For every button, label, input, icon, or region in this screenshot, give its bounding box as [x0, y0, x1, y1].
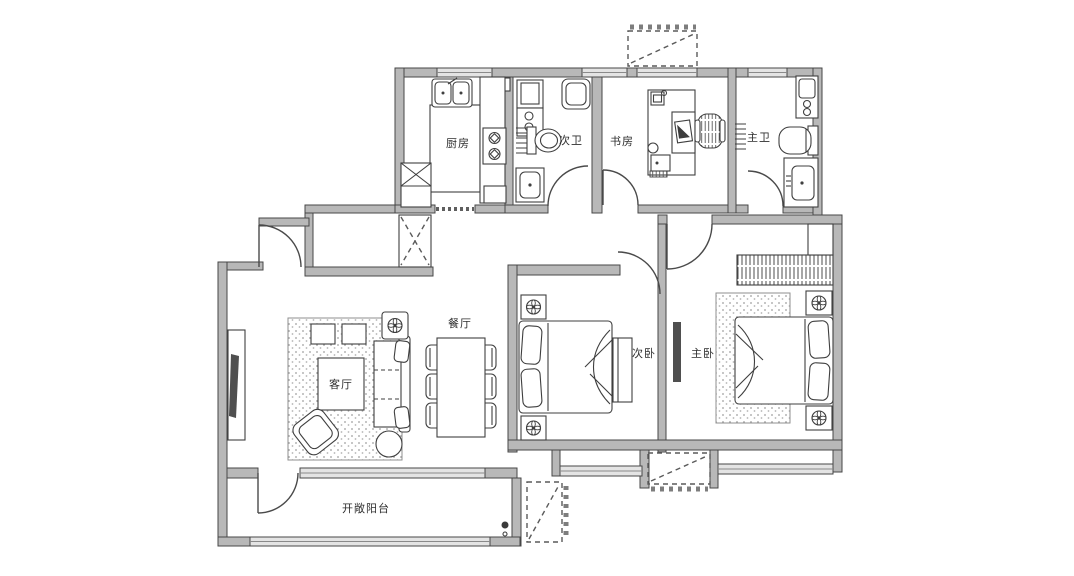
floor-drain-icon [502, 522, 509, 529]
room-label-master-bedroom: 主卧 [691, 347, 715, 360]
kitchen-stove [483, 128, 506, 164]
sofa [374, 336, 410, 432]
balcony [502, 522, 509, 537]
room-label-dining: 餐厅 [448, 316, 472, 330]
bath1-radiator [735, 124, 746, 149]
lamp-icon [526, 421, 540, 435]
study-door [603, 170, 638, 205]
window-master-bath [748, 68, 787, 77]
living-room [228, 312, 410, 460]
office-chair [695, 114, 725, 148]
window-balcony-inner [300, 468, 485, 478]
floor-cushion [342, 324, 366, 344]
computer-icon [675, 120, 693, 143]
master-bedroom [673, 224, 833, 430]
dining-room [426, 338, 496, 437]
ac-platform-bottom [648, 453, 710, 489]
bath2-toilet [527, 127, 561, 154]
nightstand [521, 416, 546, 440]
bath2-shower [562, 79, 590, 109]
nightstand [806, 406, 832, 430]
ac-platform-top [628, 27, 697, 66]
bedroom2-door [618, 252, 660, 294]
bath2-cabinet [517, 80, 543, 108]
nightstand [806, 291, 832, 315]
lamp-icon [526, 300, 540, 314]
lamp-icon [388, 318, 402, 332]
window-study [637, 68, 697, 77]
bath1-toilet [779, 126, 818, 155]
floor-plan: 厨房 次卫 书房 主卫 餐厅 客厅 次卧 主卧 开敞阳台 [0, 0, 1074, 576]
bath2-door [548, 166, 588, 206]
ac-platform-balcony [527, 482, 566, 542]
master-bedroom-door [667, 224, 712, 269]
sofa-side-table [382, 312, 408, 339]
bath2-vanity [516, 168, 544, 202]
kitchen-cabinet [484, 186, 506, 203]
fridge [401, 163, 431, 207]
bedroom2-dresser [613, 338, 632, 402]
room-label-balcony: 开敞阳台 [342, 501, 390, 515]
room-label-second-bath: 次卫 [559, 133, 583, 147]
side-round-table [376, 431, 402, 457]
shaft-box [399, 215, 431, 267]
kitchen-sink [432, 78, 472, 107]
study-shelf [650, 171, 667, 177]
dining-table [437, 338, 485, 437]
bath1-basin-cabinet [796, 76, 818, 118]
lamp-icon [812, 411, 826, 425]
lamp-icon [812, 296, 826, 310]
floor-cushion [311, 324, 335, 344]
floor-plan-page: 厨房 次卫 书房 主卫 餐厅 客厅 次卧 主卧 开敞阳台 [0, 0, 1074, 576]
window-bath2 [582, 68, 627, 77]
wardrobe [737, 255, 833, 285]
room-label-study: 书房 [610, 135, 634, 148]
study [648, 90, 725, 177]
window-bedroom2-bay [560, 466, 642, 476]
master-bath-door [748, 171, 783, 206]
entry-door [259, 225, 301, 267]
study-cabinet [651, 155, 670, 171]
nightstand [521, 295, 546, 319]
bedroom-tv-icon [673, 322, 681, 382]
bath1-vanity [784, 158, 818, 207]
second-bedroom [519, 295, 632, 440]
window-balcony-outer [250, 537, 490, 546]
study-stool [648, 143, 658, 153]
room-label-master-bath: 主卫 [747, 131, 771, 144]
room-label-second-bedroom: 次卧 [632, 346, 656, 360]
room-label-living: 客厅 [329, 377, 353, 391]
master-bed [735, 317, 833, 404]
bed2 [519, 321, 612, 413]
printer-icon [651, 91, 667, 106]
window-kitchen [437, 68, 492, 77]
window-master-bay [718, 464, 833, 474]
room-label-kitchen: 厨房 [446, 137, 470, 150]
wardrobe-end [808, 224, 833, 255]
balcony-door [258, 473, 298, 513]
